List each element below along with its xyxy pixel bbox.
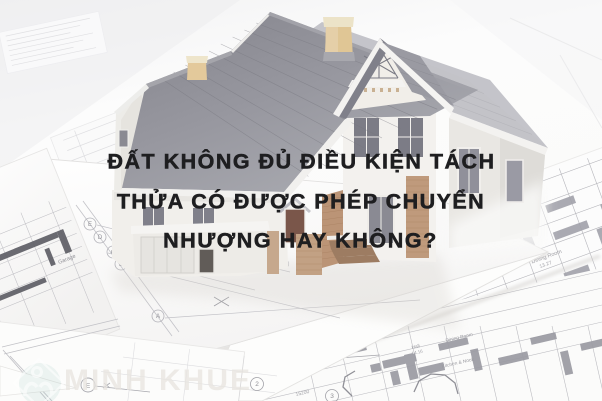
svg-text:2: 2 — [255, 381, 259, 388]
svg-text:E: E — [88, 222, 92, 228]
svg-text:ĐẤT KHÔNG ĐỦ ĐIỀU KIỆN TÁCH: ĐẤT KHÔNG ĐỦ ĐIỀU KIỆN TÁCH — [107, 149, 495, 174]
svg-text:THỬA CÓ ĐƯỢC PHÉP CHUYỂN: THỬA CÓ ĐƯỢC PHÉP CHUYỂN — [117, 189, 485, 214]
svg-text:D: D — [98, 235, 103, 241]
svg-text:MINH KHUE: MINH KHUE — [64, 364, 252, 397]
svg-text:A: A — [156, 314, 160, 320]
svg-text:NHƯỢNG HAY KHÔNG?: NHƯỢNG HAY KHÔNG? — [163, 228, 438, 253]
svg-text:3: 3 — [330, 393, 334, 400]
